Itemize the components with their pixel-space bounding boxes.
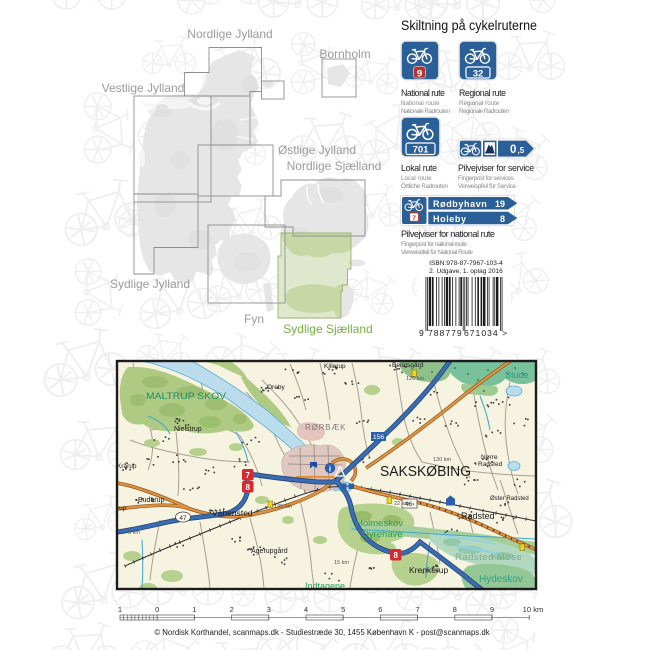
svg-text:Verweispfeil für Service: Verweispfeil für Service	[458, 183, 517, 190]
svg-text:Bornholm: Bornholm	[319, 47, 370, 61]
svg-text:Østlige Jylland: Østlige Jylland	[278, 143, 356, 157]
svg-text:9: 9	[490, 605, 494, 614]
svg-text:Killerup: Killerup	[324, 363, 346, 370]
svg-text:Fyn: Fyn	[244, 312, 264, 326]
svg-text:9: 9	[419, 328, 424, 338]
svg-text:i: i	[329, 465, 331, 474]
svg-text:Regional rute: Regional rute	[459, 88, 506, 98]
svg-text:Nordlige Jylland: Nordlige Jylland	[187, 27, 272, 41]
svg-text:Agerupgård: Agerupgård	[251, 547, 288, 555]
svg-text:Rødbyhavn: Rødbyhavn	[433, 199, 487, 209]
svg-text:19: 19	[495, 199, 505, 209]
svg-text:8: 8	[393, 551, 398, 560]
svg-text:RØRBÆK: RØRBÆK	[305, 423, 346, 432]
svg-text:Bemtsgård: Bemtsgård	[392, 361, 424, 369]
svg-text:>: >	[502, 328, 507, 338]
svg-text:ISBN:978-87-7967-103-4: ISBN:978-87-7967-103-4	[429, 260, 503, 267]
svg-text:32: 32	[473, 69, 484, 80]
svg-text:0: 0	[155, 605, 159, 614]
svg-text:Regional route: Regional route	[459, 100, 500, 107]
svg-text:22 km: 22 km	[394, 501, 409, 507]
svg-text:rup: rup	[117, 505, 127, 512]
svg-text:Fingerpost for services: Fingerpost for services	[458, 175, 514, 182]
svg-text:8: 8	[245, 483, 250, 492]
svg-text:Nationale Radrouten: Nationale Radrouten	[401, 108, 451, 115]
svg-text:Fingerpost for national route: Fingerpost for national route	[401, 241, 468, 248]
svg-text:Lokal rute: Lokal rute	[401, 163, 437, 173]
svg-text:8: 8	[453, 605, 457, 614]
svg-text:Nordlige Sjælland: Nordlige Sjælland	[287, 159, 382, 173]
svg-text:Nielstrup: Nielstrup	[174, 426, 202, 433]
svg-text:National route: National route	[401, 100, 440, 107]
svg-text:Vestlige Jylland: Vestlige Jylland	[102, 81, 185, 95]
svg-text:7: 7	[245, 471, 250, 480]
svg-text:Krenkerup: Krenkerup	[409, 565, 448, 575]
svg-text:701: 701	[413, 145, 430, 156]
svg-text:Krårup: Krårup	[117, 462, 137, 470]
svg-text:788779: 788779	[428, 328, 463, 338]
svg-text:Oreby: Oreby	[267, 384, 285, 391]
svg-text:Skiltning på cykelruterne: Skiltning på cykelruterne	[401, 17, 537, 33]
svg-text:Radsted: Radsted	[478, 461, 503, 468]
svg-text:Stude: Stude	[505, 370, 529, 380]
svg-text:Pilvejviser for national rute: Pilvejviser for national rute	[401, 229, 495, 239]
svg-text:8: 8	[500, 214, 505, 224]
svg-text:Nørre: Nørre	[481, 454, 498, 461]
svg-text:7: 7	[415, 605, 419, 614]
svg-text:5 km: 5 km	[128, 530, 140, 536]
svg-text:3: 3	[267, 605, 271, 614]
svg-text:0: 0	[510, 144, 516, 156]
svg-text:4: 4	[304, 605, 308, 614]
svg-text:Holmeskov: Holmeskov	[356, 518, 403, 529]
svg-text:130 km: 130 km	[433, 457, 451, 463]
svg-text:10 km: 10 km	[523, 605, 544, 614]
svg-text:Hydeskov: Hydeskov	[479, 574, 523, 585]
svg-text:Örtliche Radrouten: Örtliche Radrouten	[401, 183, 449, 190]
svg-text:135 km: 135 km	[274, 504, 292, 510]
svg-text:9: 9	[417, 69, 422, 80]
svg-text:,5: ,5	[518, 146, 525, 155]
svg-text:Radsted: Radsted	[461, 511, 495, 521]
svg-text:671034: 671034	[464, 328, 499, 338]
svg-text:Øster Radsted: Øster Radsted	[490, 496, 529, 502]
svg-text:7: 7	[412, 215, 416, 222]
svg-text:Dyrehave: Dyrehave	[362, 529, 403, 540]
svg-text:2: 2	[229, 605, 233, 614]
svg-text:2. Udgave, 1. oplag 2016: 2. Udgave, 1. oplag 2016	[429, 268, 503, 275]
svg-text:Pilvejviser for service: Pilvejviser for service	[458, 163, 534, 173]
svg-text:1: 1	[118, 605, 122, 614]
svg-text:© Nordisk Korthandel, scanmaps: © Nordisk Korthandel, scanmaps.dk - Stud…	[154, 628, 489, 637]
svg-text:6: 6	[378, 605, 382, 614]
svg-text:156: 156	[373, 434, 385, 441]
svg-text:47: 47	[179, 515, 187, 522]
svg-text:Regionale Radrouten: Regionale Radrouten	[459, 108, 510, 115]
svg-text:Sydlige Jylland: Sydlige Jylland	[110, 277, 190, 291]
svg-text:MALTRUP SKOV: MALTRUP SKOV	[146, 391, 227, 402]
svg-text:1: 1	[192, 605, 196, 614]
svg-text:15 km: 15 km	[334, 560, 349, 566]
svg-text:Radsted Mose: Radsted Mose	[455, 552, 522, 563]
svg-text:National rute: National rute	[401, 88, 445, 98]
svg-text:Local route: Local route	[401, 175, 432, 182]
svg-text:Sydlige Sjælland: Sydlige Sjælland	[283, 322, 372, 336]
svg-text:Våbensted: Våbensted	[212, 508, 253, 518]
svg-text:120 km: 120 km	[406, 376, 424, 382]
svg-text:5: 5	[341, 605, 345, 614]
svg-text:Buderup: Buderup	[138, 497, 165, 504]
svg-text:SAKSKØBING: SAKSKØBING	[380, 463, 471, 480]
svg-text:Holeby: Holeby	[433, 214, 467, 224]
